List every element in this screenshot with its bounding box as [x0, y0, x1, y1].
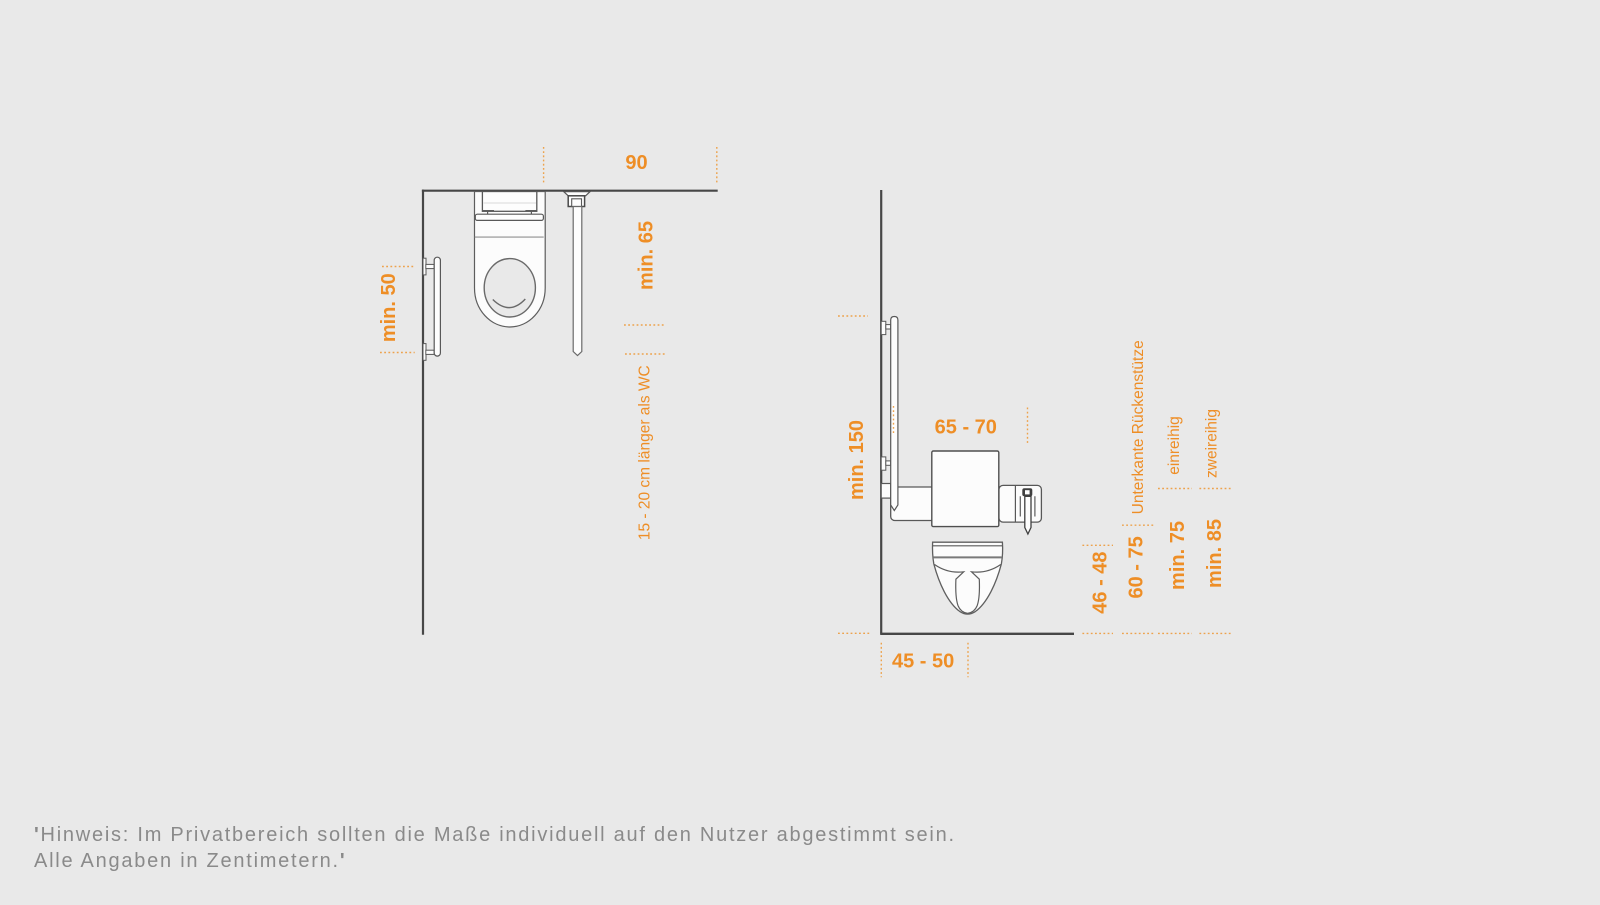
svg-text:'Hinweis: Im Privatbereich sol: 'Hinweis: Im Privatbereich sollten die M… [34, 824, 956, 846]
svg-text:65 - 70: 65 - 70 [935, 417, 997, 439]
svg-text:Unterkante Rückenstütze: Unterkante Rückenstütze [1130, 340, 1147, 514]
svg-text:min. 75: min. 75 [1167, 521, 1189, 590]
svg-text:Alle Angaben in Zentimetern.': Alle Angaben in Zentimetern.' [34, 850, 346, 872]
svg-text:15 - 20 cm länger als WC: 15 - 20 cm länger als WC [637, 365, 654, 540]
svg-text:einreihig: einreihig [1166, 416, 1183, 475]
svg-text:60 - 75: 60 - 75 [1126, 536, 1148, 598]
svg-text:min. 65: min. 65 [636, 221, 658, 290]
svg-text:45 - 50: 45 - 50 [892, 650, 954, 672]
svg-text:zweireihig: zweireihig [1204, 409, 1221, 478]
svg-text:90: 90 [625, 152, 647, 174]
svg-text:min. 150: min. 150 [846, 420, 868, 500]
svg-text:46 - 48: 46 - 48 [1090, 551, 1112, 613]
svg-text:min. 50: min. 50 [378, 273, 400, 342]
svg-text:min. 85: min. 85 [1204, 519, 1226, 588]
